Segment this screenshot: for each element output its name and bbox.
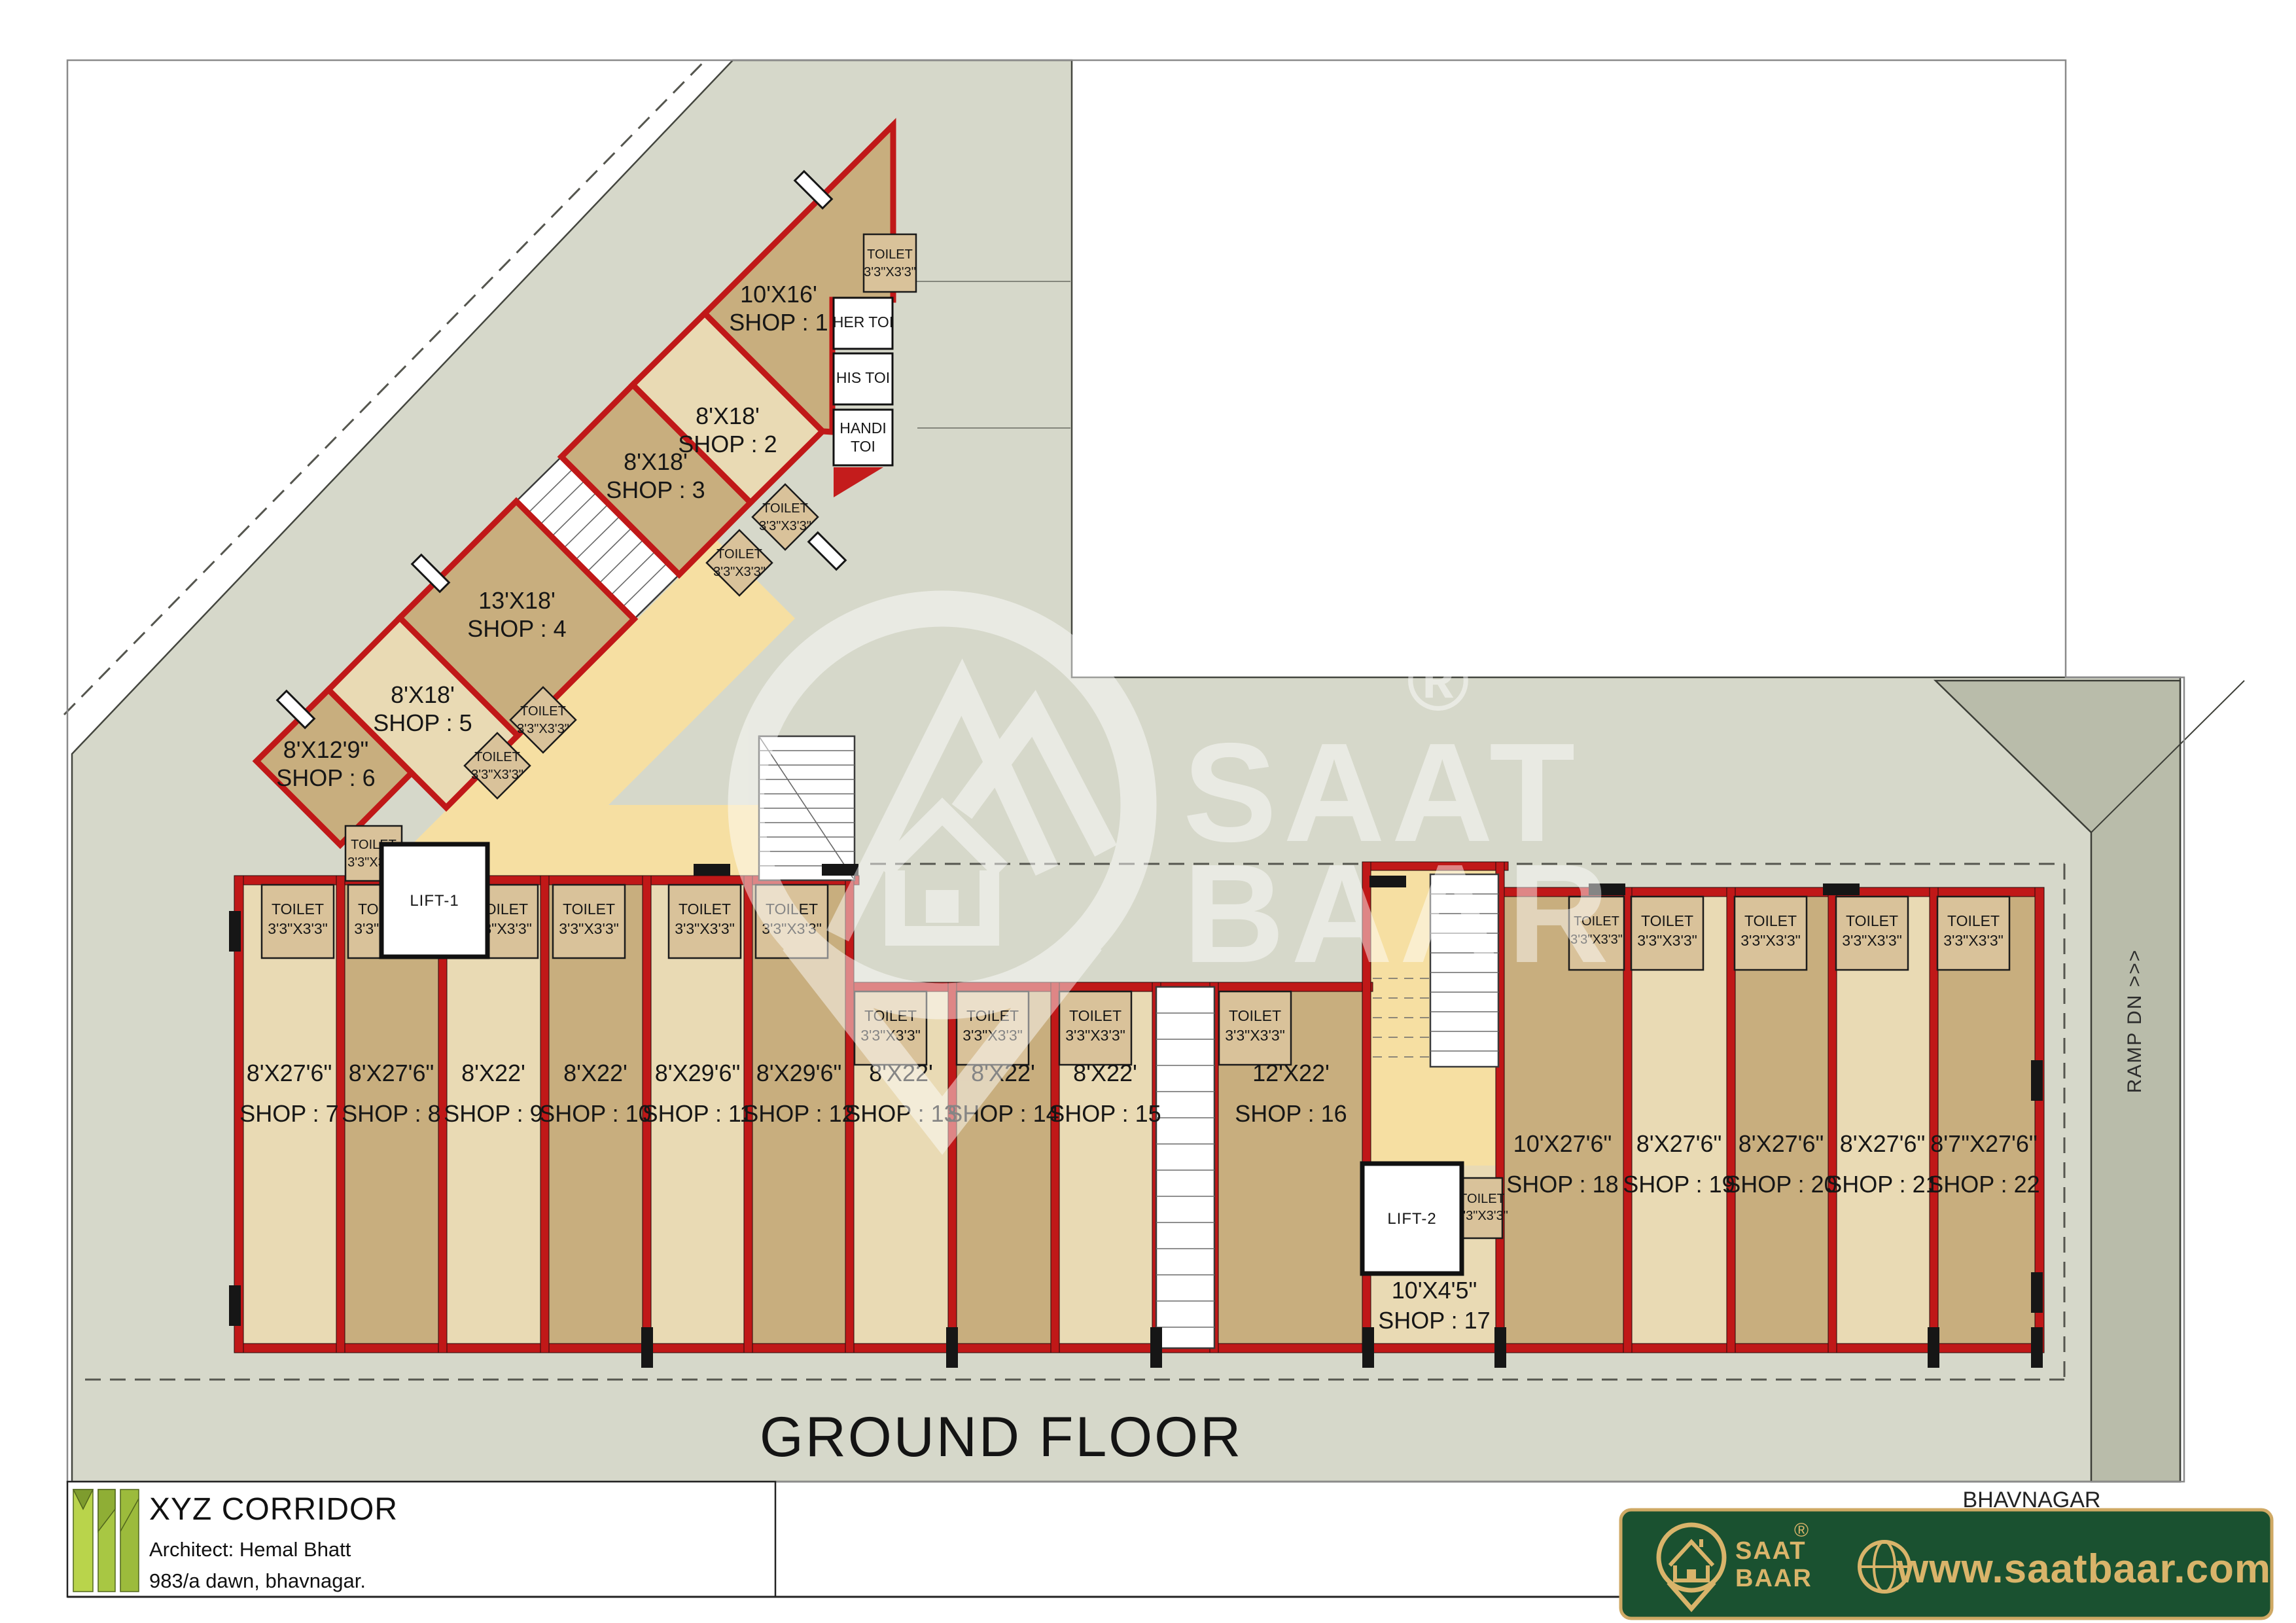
toilet-room: TOILET3'3"X3'3" [1937,897,2009,970]
svg-text:3'3"X3'3": 3'3"X3'3" [559,920,619,937]
svg-text:8'X29'6": 8'X29'6" [756,1060,842,1086]
svg-text:TOILET: TOILET [1744,912,1797,929]
svg-text:SHOP : 22: SHOP : 22 [1928,1171,2040,1198]
svg-text:12'X22': 12'X22' [1252,1060,1330,1086]
svg-text:TOILET: TOILET [679,901,731,918]
svg-text:®: ® [1407,633,1476,728]
svg-text:8'X18': 8'X18' [696,402,760,429]
svg-text:8'X27'6": 8'X27'6" [1636,1130,1722,1157]
svg-text:10'X27'6": 10'X27'6" [1513,1130,1612,1157]
svg-text:SHOP : 16: SHOP : 16 [1235,1100,1347,1127]
svg-text:8'X27'6": 8'X27'6" [349,1060,434,1086]
svg-text:3'3"X3'3": 3'3"X3'3" [864,265,916,279]
toilet-room: TOILET3'3"X3'3" [864,234,916,292]
svg-text:BAAR: BAAR [1735,1565,1812,1592]
svg-text:3'3"X3'3": 3'3"X3'3" [713,565,766,579]
svg-text:TOILET: TOILET [520,704,566,719]
svg-text:3'3"X3'3": 3'3"X3'3" [1740,932,1801,949]
her-toilet-label: HER TOI [833,313,893,330]
svg-text:SHOP : 5: SHOP : 5 [373,709,472,736]
project-name: XYZ CORRIDOR [149,1492,398,1527]
svg-text:8'X22': 8'X22' [461,1060,525,1086]
svg-text:TOILET: TOILET [1846,912,1898,929]
svg-text:SHOP : 11: SHOP : 11 [643,1100,753,1127]
svg-text:SHOP : 15: SHOP : 15 [1049,1100,1161,1127]
svg-text:3'3"X3'3": 3'3"X3'3" [1637,932,1697,949]
toilet-room: TOILET3'3"X3'3" [1735,897,1807,970]
svg-text:13'X18': 13'X18' [478,587,556,614]
ramp-label: RAMP DN >>> [2124,949,2146,1094]
svg-text:SHOP : 8: SHOP : 8 [342,1100,440,1127]
svg-text:8'X27'6": 8'X27'6" [247,1060,332,1086]
svg-text:SHOP : 12: SHOP : 12 [743,1100,855,1127]
lift-1-label: LIFT-1 [410,892,459,910]
svg-text:3'3"X3'3": 3'3"X3'3" [1943,932,2004,949]
staircase-15-16 [1156,987,1214,1348]
svg-text:SHOP : 4: SHOP : 4 [467,615,566,642]
svg-text:TOILET: TOILET [1641,912,1693,929]
svg-text:TOILET: TOILET [563,901,615,918]
ground-floor-plan-drawing: TOILET3'3"X3'3" TOILET3'3"X3'3" TOILET3'… [0,0,2296,1623]
svg-text:3'3"X3'3": 3'3"X3'3" [675,920,735,937]
website-url: www.saatbaar.com [1896,1546,2271,1592]
toilet-room: TOILET3'3"X3'3" [1631,897,1703,970]
toilet-room: TOILET3'3"X3'3" [669,885,741,958]
svg-text:3'3"X3'3": 3'3"X3'3" [268,920,328,937]
svg-text:TOILET: TOILET [762,501,808,516]
svg-text:SHOP : 6: SHOP : 6 [276,764,375,791]
architect-name: Architect: Hemal Bhatt [149,1538,351,1561]
svg-text:TOI: TOI [851,438,875,455]
xyz-logo-icon [73,1489,139,1592]
svg-text:8'7"X27'6": 8'7"X27'6" [1930,1130,2037,1157]
his-toilet-label: HIS TOI [836,369,890,386]
toilet-room: TOILET3'3"X3'3" [1836,897,1908,970]
svg-text:SHOP : 21: SHOP : 21 [1826,1171,1938,1198]
svg-text:8'X27'6": 8'X27'6" [1840,1130,1926,1157]
svg-text:8'X22': 8'X22' [1073,1060,1137,1086]
svg-text:TOILET: TOILET [272,901,324,918]
svg-text:TOILET: TOILET [867,247,913,262]
svg-text:TOILET: TOILET [1459,1192,1505,1206]
svg-text:SHOP : 2: SHOP : 2 [678,431,777,457]
handicap-toilet-label: HANDI [839,419,887,437]
registered-mark: ® [1794,1520,1809,1541]
svg-text:SAAT: SAAT [1735,1537,1807,1565]
svg-text:8'X29'6": 8'X29'6" [655,1060,741,1086]
svg-text:SHOP : 3: SHOP : 3 [606,476,705,503]
svg-text:3'3"X3'3": 3'3"X3'3" [759,519,811,533]
svg-text:TOILET: TOILET [1069,1007,1122,1024]
svg-text:TOILET: TOILET [1229,1007,1281,1024]
svg-text:TOILET: TOILET [474,750,520,764]
svg-text:3'3"X3'3": 3'3"X3'3" [517,722,569,736]
toilet-room: TOILET3'3"X3'3" [553,885,625,958]
svg-text:8'X22': 8'X22' [563,1060,627,1086]
svg-text:8'X12'9": 8'X12'9" [283,736,369,763]
svg-text:3'3"X3'3": 3'3"X3'3" [1065,1027,1125,1044]
svg-text:8'X18': 8'X18' [624,448,688,475]
svg-text:SHOP : 20: SHOP : 20 [1725,1171,1837,1198]
toilet-room: TOILET3'3"X3'3" [262,885,334,958]
svg-text:SHOP : 19: SHOP : 19 [1623,1171,1735,1198]
lift-2-label: LIFT-2 [1387,1210,1436,1228]
page-title: GROUND FLOOR [760,1406,1243,1469]
toilet-room: TOILET3'3"X3'3" [1219,991,1291,1065]
project-address: 983/a dawn, bhavnagar. [149,1569,366,1592]
staircase-upper [759,736,855,880]
svg-text:SHOP : 9: SHOP : 9 [444,1100,542,1127]
svg-text:SHOP : 18: SHOP : 18 [1506,1171,1618,1198]
svg-text:TOILET: TOILET [1947,912,2000,929]
svg-text:10'X16': 10'X16' [740,281,817,308]
svg-text:TOILET: TOILET [716,547,762,562]
svg-text:SHOP : 7: SHOP : 7 [239,1100,338,1127]
svg-text:10'X4'5": 10'X4'5" [1392,1277,1477,1304]
svg-text:BAAR: BAAR [1183,834,1616,992]
svg-text:8'X18': 8'X18' [391,681,455,708]
svg-text:8'X27'6": 8'X27'6" [1739,1130,1824,1157]
saatbaar-banner: SAAT BAAR ® www.saatbaar.com [1621,1510,2272,1618]
svg-text:3'3"X3'3": 3'3"X3'3" [471,768,523,782]
floor-plan-sheet: TOILET3'3"X3'3" TOILET3'3"X3'3" TOILET3'… [0,0,2296,1623]
svg-text:SHOP : 1: SHOP : 1 [729,309,828,336]
toilet-room: TOILET3'3"X3'3" [1059,991,1131,1065]
svg-text:3'3"X3'3": 3'3"X3'3" [1842,932,1902,949]
svg-text:3'3"X3'3": 3'3"X3'3" [1225,1027,1285,1044]
svg-text:SHOP : 10: SHOP : 10 [539,1100,651,1127]
svg-text:SHOP : 17: SHOP : 17 [1378,1307,1490,1334]
